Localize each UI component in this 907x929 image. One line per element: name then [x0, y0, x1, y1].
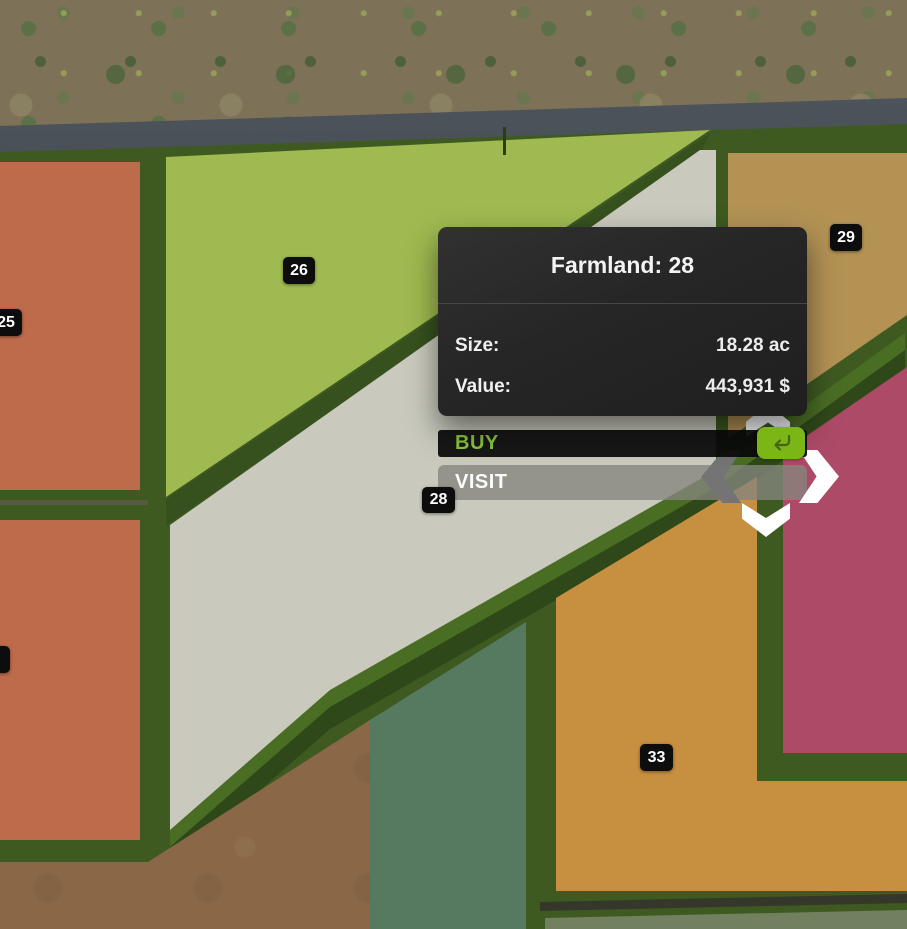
- field-number-badge-25: 25: [0, 309, 22, 336]
- field-number-badge-7: 7: [0, 646, 10, 673]
- value-label: Value:: [455, 376, 511, 398]
- panel-header: Farmland: 28: [438, 227, 807, 303]
- farmland-map: 26 25 29 33 7 Farmland: 28 Size: 18.28 a…: [0, 0, 907, 929]
- field-number-badge-28: 28: [422, 487, 455, 513]
- enter-key-button[interactable]: [757, 427, 805, 459]
- size-value: 18.28 ac: [716, 335, 790, 357]
- panel-title: Farmland: 28: [551, 252, 694, 279]
- value-row: Value: 443,931 $: [455, 375, 790, 399]
- field-number-badge-33: 33: [640, 744, 673, 771]
- buy-button[interactable]: BUY: [438, 430, 807, 457]
- visit-button[interactable]: VISIT: [438, 465, 807, 500]
- field-number-badge-29: 29: [830, 224, 862, 251]
- panel-rows: Size: 18.28 ac Value: 443,931 $: [438, 304, 807, 399]
- enter-return-icon: [768, 432, 794, 454]
- buy-button-label: BUY: [438, 432, 499, 455]
- field-number-badge-26: 26: [283, 257, 315, 284]
- value-value: 443,931 $: [705, 376, 790, 398]
- size-row: Size: 18.28 ac: [455, 334, 790, 358]
- farmland-info-panel: Farmland: 28 Size: 18.28 ac Value: 443,9…: [438, 227, 807, 416]
- size-label: Size:: [455, 335, 499, 357]
